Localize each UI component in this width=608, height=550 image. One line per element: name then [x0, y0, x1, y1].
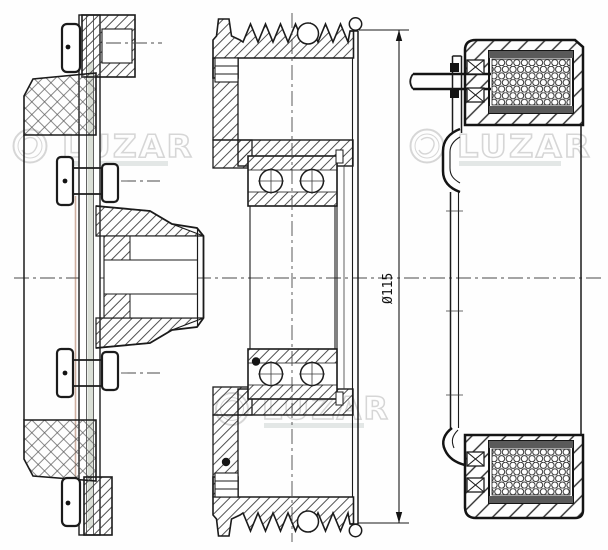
- coil-windings-bottom: [492, 449, 570, 495]
- view-coil-housing: [410, 40, 583, 518]
- bearing-lower: [248, 349, 343, 405]
- dimension-d115: Ø115: [358, 30, 409, 523]
- groove-ball-top: [298, 23, 319, 44]
- watermark-text: LUZAR: [457, 129, 592, 165]
- bobbin-flange: [489, 441, 573, 448]
- seal-dot: [222, 458, 230, 466]
- damper-rubber-top: [24, 73, 96, 135]
- watermark-tagline-bar: [459, 161, 561, 166]
- coil-windings-top: [492, 59, 570, 105]
- hub-boss: [96, 206, 204, 348]
- rivet-bottom: [62, 478, 80, 526]
- view-pulley: [213, 13, 362, 542]
- dimension-label: Ø115: [381, 273, 396, 304]
- detent-ball-bottom: [349, 524, 361, 536]
- damper-rubber-bottom: [24, 420, 96, 481]
- watermark-right: LUZAR: [411, 129, 593, 166]
- technical-drawing-page: LUZAR LUZAR LUZAR: [0, 0, 608, 550]
- rivet-top: [62, 24, 80, 72]
- snap-ring: [336, 392, 343, 405]
- watermark-tagline-bar: [264, 423, 364, 428]
- bobbin-flange: [489, 51, 573, 58]
- detent-ball-top: [349, 18, 361, 30]
- view-hub-plate: [24, 15, 204, 535]
- bottom-bracket: [84, 477, 112, 535]
- arrowhead-up-icon: [396, 30, 402, 41]
- arrowhead-down-icon: [396, 512, 402, 523]
- seal-dot: [252, 357, 260, 365]
- mounting-lug-bottom: [443, 428, 465, 465]
- bearing-upper: [248, 150, 343, 206]
- retainer-pin-lower: [57, 349, 160, 397]
- bobbin-flange: [489, 496, 573, 503]
- bobbin-flange: [489, 106, 573, 113]
- technical-drawing: LUZAR LUZAR LUZAR: [0, 0, 608, 550]
- snap-ring: [336, 150, 343, 163]
- groove-ball-bottom: [298, 511, 319, 532]
